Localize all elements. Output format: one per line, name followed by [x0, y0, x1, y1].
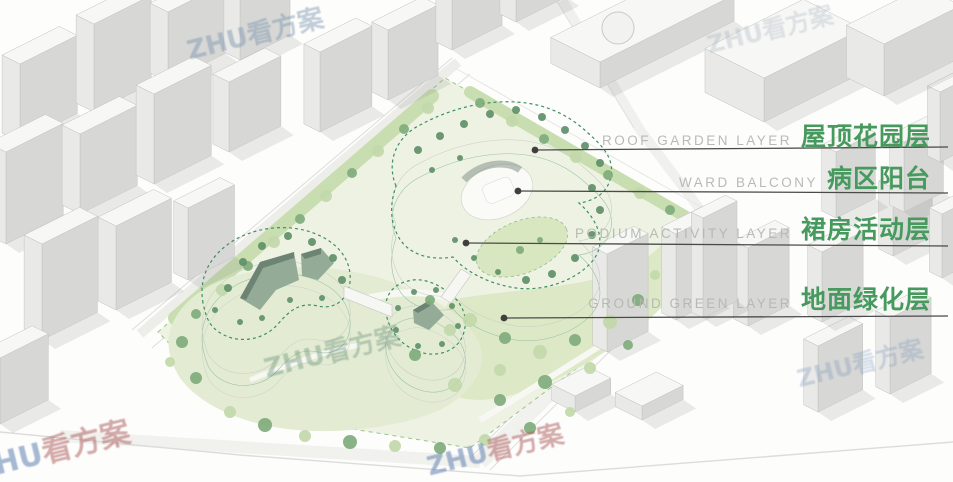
tree	[538, 375, 552, 389]
tree	[479, 434, 491, 446]
label-roof-garden-layer: ROOF GARDEN LAYER 屋顶花园层	[602, 124, 931, 149]
label-roof-garden-zh: 屋顶花园层	[801, 124, 931, 149]
label-ground-green-zh: 地面绿化层	[801, 287, 931, 312]
tree	[372, 145, 384, 157]
leader-dot-ward-balcony	[515, 188, 522, 195]
tree	[522, 276, 530, 284]
tree	[603, 170, 613, 180]
tree	[295, 214, 305, 224]
round-building	[602, 12, 634, 44]
tree	[212, 307, 218, 313]
tree	[258, 418, 272, 432]
label-ground-green-en: GROUND GREEN LAYER	[588, 296, 792, 311]
tree	[389, 440, 401, 452]
tree	[444, 324, 456, 336]
tree	[565, 407, 575, 417]
label-ground-green-layer: GROUND GREEN LAYER 地面绿化层	[588, 287, 931, 312]
tree	[570, 151, 582, 163]
city-tower	[24, 207, 110, 349]
tree	[239, 258, 247, 266]
tree	[258, 242, 266, 250]
tree	[533, 345, 547, 359]
tree	[634, 187, 646, 199]
axonometric-architecture-diagram: ROOF GARDEN LAYER 屋顶花园层 WARD BALCONY 病区阳…	[0, 0, 953, 482]
tree	[393, 327, 399, 333]
tree	[475, 98, 485, 108]
tree	[422, 102, 434, 114]
tree	[460, 120, 468, 128]
tree	[494, 364, 506, 376]
tree	[224, 284, 232, 292]
tree	[457, 155, 463, 161]
tree	[176, 336, 188, 348]
label-roof-garden-en: ROOF GARDEN LAYER	[602, 133, 792, 148]
tree	[343, 435, 357, 449]
tree	[512, 106, 520, 114]
tree	[299, 430, 311, 442]
tree	[395, 305, 401, 311]
tree	[414, 146, 422, 154]
tree	[308, 238, 316, 246]
label-podium-activity-layer: PODIUM ACTIVITY LAYER 裙房活动层	[575, 217, 931, 242]
tree	[499, 332, 511, 344]
city-tower	[615, 372, 696, 429]
tree	[516, 246, 524, 254]
tree	[449, 303, 455, 309]
tree	[623, 340, 633, 350]
tree	[571, 254, 579, 262]
tree	[596, 206, 604, 214]
tree	[569, 334, 581, 346]
tree	[411, 289, 417, 295]
tree	[448, 378, 462, 392]
tree	[434, 442, 446, 454]
tree	[650, 270, 660, 280]
tree	[190, 372, 202, 384]
city-tower	[804, 316, 876, 421]
tree	[584, 362, 596, 374]
label-ward-balcony-en: WARD BALCONY	[679, 175, 818, 190]
tree	[665, 205, 675, 215]
tree	[538, 113, 546, 121]
label-ward-balcony-zh: 病区阳台	[827, 166, 931, 191]
tree	[596, 159, 604, 167]
tree	[455, 323, 461, 329]
tree	[436, 132, 444, 140]
leader-dot-podium-activity	[463, 240, 470, 247]
tree	[224, 406, 236, 418]
tree	[319, 295, 325, 301]
tree	[425, 295, 435, 305]
tree	[409, 349, 421, 361]
tree	[165, 357, 175, 367]
tree	[433, 287, 439, 293]
leader-dot-ground-green	[501, 315, 508, 322]
tree	[237, 319, 243, 325]
tree	[486, 110, 494, 118]
tree	[287, 297, 293, 303]
tree	[338, 276, 346, 284]
tree	[561, 126, 569, 134]
tree	[191, 309, 201, 319]
tree	[268, 236, 280, 248]
tree	[495, 269, 501, 275]
tree	[399, 124, 409, 134]
label-podium-activity-en: PODIUM ACTIVITY LAYER	[575, 226, 792, 241]
tree	[259, 315, 265, 321]
tree	[548, 270, 556, 278]
tree	[415, 343, 421, 349]
tree	[581, 142, 589, 150]
tree	[284, 232, 292, 240]
tree	[320, 190, 332, 202]
tree	[506, 115, 518, 127]
label-ward-balcony: WARD BALCONY 病区阳台	[679, 166, 931, 191]
label-podium-activity-zh: 裙房活动层	[801, 217, 931, 242]
tree	[463, 313, 477, 327]
tree	[539, 134, 549, 144]
tree	[452, 237, 458, 243]
tree	[429, 167, 435, 173]
tree	[537, 237, 543, 243]
tree	[439, 341, 445, 347]
tree	[494, 394, 506, 406]
tree	[471, 255, 477, 261]
tree	[347, 168, 357, 178]
tree	[524, 422, 536, 434]
leader-dot-roof-garden	[532, 147, 539, 154]
tree	[329, 254, 337, 262]
